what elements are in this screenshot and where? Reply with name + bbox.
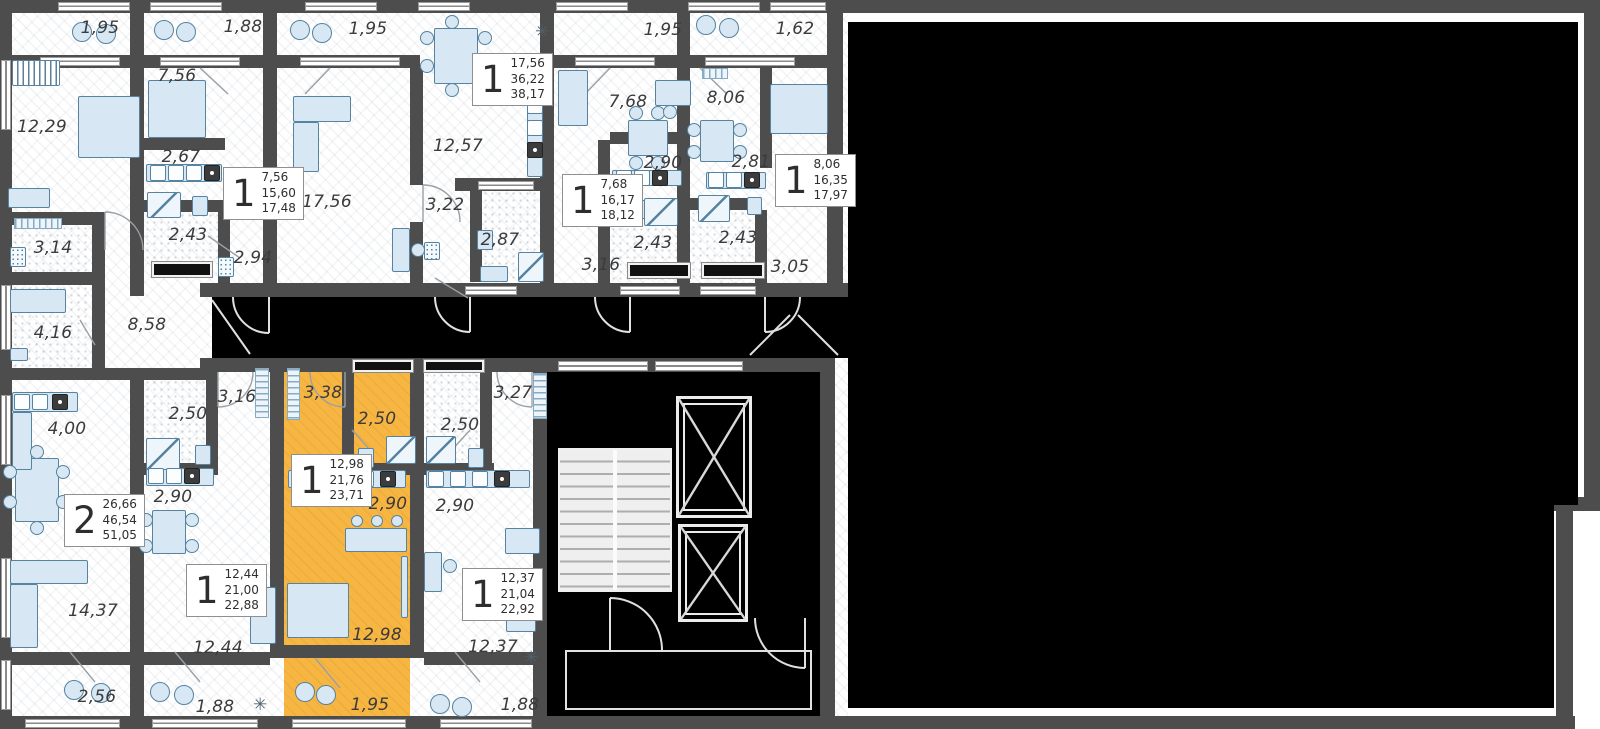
- furniture-icon: [10, 584, 38, 648]
- chair-icon: [443, 559, 457, 573]
- window-icon: [1, 395, 11, 465]
- stove-icon: [184, 468, 200, 484]
- room-area-label: 2,50: [358, 409, 397, 429]
- room-area-label: 2,43: [169, 225, 208, 245]
- room-area-label: 14,37: [68, 601, 118, 621]
- furniture-icon: [195, 445, 211, 465]
- appliance-icon: [708, 172, 724, 188]
- unit-badge[interactable]: 18,0616,3517,97: [775, 154, 856, 207]
- cabinet-icon: [10, 247, 26, 267]
- unit-badge[interactable]: 117,5636,2238,17: [472, 53, 553, 106]
- cabinet-icon: [424, 242, 440, 260]
- window-icon: [25, 719, 120, 728]
- room-area-label: 2,67: [162, 147, 201, 167]
- window-icon: [58, 2, 130, 11]
- unit-rooms-count: 2: [73, 502, 97, 539]
- unit-areas: 17,5636,2238,17: [511, 56, 545, 103]
- wall-segment: [410, 222, 423, 296]
- room-area-label: 1,95: [81, 18, 120, 38]
- window-icon: [465, 286, 517, 295]
- unit-rooms-count: 1: [300, 462, 324, 499]
- balcony-chair-icon: [312, 23, 332, 43]
- window-icon: [655, 361, 743, 371]
- unit-area-value: 16,35: [814, 173, 848, 189]
- unit-area-value: 18,12: [601, 208, 635, 224]
- room-area-label: 2,43: [719, 228, 758, 248]
- room-area-label: 1,88: [196, 697, 235, 717]
- balcony-chair-icon: [316, 685, 336, 705]
- chair-icon: [185, 513, 199, 527]
- balcony-chair-icon: [150, 682, 170, 702]
- room-area-label: 3,38: [304, 383, 343, 403]
- unit-badge-selected[interactable]: 112,9821,7623,71: [291, 454, 372, 507]
- unit-area-value: 17,48: [262, 201, 296, 217]
- wall-segment: [1584, 13, 1600, 501]
- room-area-label: 12,37: [468, 637, 518, 657]
- wall-segment: [410, 68, 423, 185]
- balcony-chair-icon: [154, 20, 174, 40]
- unit-area-value: 7,68: [601, 177, 635, 193]
- shower-icon: [698, 195, 730, 222]
- appliance-icon: [726, 172, 742, 188]
- unit-rooms-count: 1: [571, 182, 595, 219]
- shower-icon: [518, 252, 544, 282]
- window-icon: [575, 57, 655, 66]
- unit-rooms-count: 1: [232, 175, 256, 212]
- chair-icon: [420, 31, 434, 45]
- unit-badge[interactable]: 112,4421,0022,88: [186, 564, 267, 617]
- chair-icon: [30, 445, 44, 459]
- redacted-area: [212, 297, 848, 358]
- furniture-icon: [655, 80, 691, 106]
- furniture-icon: [424, 552, 442, 592]
- chair-icon: [185, 539, 199, 553]
- unit-rooms-count: 1: [784, 162, 808, 199]
- furniture-icon: [287, 583, 349, 638]
- chair-icon: [420, 59, 434, 73]
- staircase-icon: [558, 448, 672, 592]
- stove-icon: [744, 172, 760, 188]
- furniture-icon: [345, 528, 407, 552]
- furniture-icon: [148, 80, 206, 138]
- stool-icon: [391, 515, 403, 527]
- room-area-label: 2,90: [436, 496, 475, 516]
- furniture-icon: [10, 348, 28, 361]
- unit-badge[interactable]: 17,5615,6017,48: [223, 167, 304, 220]
- shower-icon: [386, 436, 416, 464]
- room-area-label: 2,43: [634, 233, 673, 253]
- chair-icon: [445, 15, 459, 29]
- room-area-label: 8,58: [128, 315, 167, 335]
- shower-icon: [644, 198, 678, 226]
- window-icon: [305, 2, 377, 11]
- niche-icon: [628, 263, 690, 278]
- window-icon: [558, 361, 648, 371]
- balcony-chair-icon: [452, 697, 472, 717]
- room-area-label: 2,50: [441, 415, 480, 435]
- furniture-icon: [8, 188, 50, 208]
- furniture-icon: [152, 510, 186, 554]
- unit-area-value: 46,54: [103, 513, 137, 529]
- appliance-icon: [450, 471, 466, 487]
- wall-segment: [1556, 511, 1573, 716]
- window-icon: [620, 286, 680, 295]
- unit-area-value: 12,37: [501, 571, 535, 587]
- chair-icon: [663, 105, 677, 119]
- room-area-label: 3,16: [582, 255, 621, 275]
- unit-area-value: 38,17: [511, 87, 545, 103]
- chair-icon: [411, 243, 425, 257]
- furniture-icon: [770, 84, 828, 134]
- room-area-label: 17,56: [302, 192, 352, 212]
- room-area-label: 12,57: [433, 136, 483, 156]
- room-area-label: 1,62: [776, 19, 815, 39]
- appliance-icon: [186, 165, 202, 181]
- room-area-label: 2,90: [154, 487, 193, 507]
- elevator-shaft-icon: [678, 524, 748, 622]
- wall-segment: [0, 272, 100, 285]
- unit-badge[interactable]: 226,6646,5451,05: [64, 494, 145, 547]
- window-icon: [160, 57, 240, 66]
- unit-area-value: 26,66: [103, 497, 137, 513]
- window-icon: [1, 60, 11, 130]
- window-icon: [292, 719, 406, 728]
- window-icon: [150, 2, 222, 11]
- appliance-icon: [32, 394, 48, 410]
- wall-segment: [410, 358, 424, 658]
- coat-rack-icon: [14, 218, 62, 229]
- furniture-icon: [392, 228, 410, 272]
- furniture-icon: [747, 197, 762, 215]
- unit-area-value: 22,92: [501, 602, 535, 618]
- furniture-icon: [10, 560, 88, 584]
- window-icon: [705, 57, 795, 66]
- floor-plan: ✳✳✳ 1,951,881,951,951,6212,297,562,6717,…: [0, 0, 1600, 729]
- wardrobe-icon: [255, 368, 269, 418]
- balcony-chair-icon: [176, 22, 196, 42]
- chair-icon: [478, 31, 492, 45]
- stool-icon: [351, 515, 363, 527]
- redacted-area: [848, 22, 1578, 505]
- unit-area-value: 23,71: [330, 488, 364, 504]
- room-area-label: 2,81: [732, 152, 771, 172]
- unit-area-value: 51,05: [103, 528, 137, 544]
- unit-area-value: 8,06: [814, 157, 848, 173]
- unit-rooms-count: 1: [471, 576, 495, 613]
- room-area-label: 3,27: [494, 383, 533, 403]
- appliance-icon: [428, 471, 444, 487]
- unit-area-value: 15,60: [262, 186, 296, 202]
- chair-icon: [3, 495, 17, 509]
- window-icon: [418, 2, 470, 11]
- unit-areas: 26,6646,5451,05: [103, 497, 137, 544]
- furniture-icon: [192, 196, 208, 216]
- wall-segment: [342, 368, 354, 463]
- furniture-icon: [293, 96, 351, 122]
- unit-area-value: 36,22: [511, 72, 545, 88]
- unit-area-value: 21,04: [501, 587, 535, 603]
- chair-icon: [445, 83, 459, 97]
- window-icon: [688, 2, 760, 11]
- unit-area-value: 17,97: [814, 188, 848, 204]
- unit-areas: 8,0616,3517,97: [814, 157, 848, 204]
- room-area-label: 12,44: [193, 638, 243, 658]
- room-area-label: 3,16: [218, 387, 257, 407]
- appliance-icon: [14, 394, 30, 410]
- chair-icon: [30, 521, 44, 535]
- balcony-chair-icon: [295, 682, 315, 702]
- niche-icon: [353, 360, 413, 372]
- room-area-label: 1,88: [501, 695, 540, 715]
- unit-areas: 7,5615,6017,48: [262, 170, 296, 217]
- window-icon: [770, 2, 826, 11]
- room-area-label: 2,90: [369, 494, 408, 514]
- stove-icon: [527, 142, 543, 158]
- unit-areas: 7,6816,1718,12: [601, 177, 635, 224]
- room-area-label: 1,95: [351, 695, 390, 715]
- balcony-chair-icon: [719, 18, 739, 38]
- furniture-icon: [293, 122, 319, 172]
- unit-areas: 12,4421,0022,88: [225, 567, 259, 614]
- room-area-label: 3,05: [771, 257, 810, 277]
- stove-icon: [494, 471, 510, 487]
- unit-area-value: 7,56: [262, 170, 296, 186]
- room-area-label: 2,56: [78, 687, 117, 707]
- wall-segment: [92, 212, 105, 380]
- chair-icon: [733, 123, 747, 137]
- chair-icon: [56, 465, 70, 479]
- room-area-label: 7,68: [609, 92, 648, 112]
- room-area-label: 12,29: [17, 117, 67, 137]
- balcony-chair-icon: [174, 685, 194, 705]
- unit-areas: 12,3721,0422,92: [501, 571, 535, 618]
- unit-rooms-count: 1: [481, 61, 505, 98]
- stove-icon: [52, 394, 68, 410]
- shower-icon: [146, 438, 180, 470]
- room-area-label: 2,50: [169, 404, 208, 424]
- unit-area-value: 22,88: [225, 598, 259, 614]
- appliance-icon: [148, 468, 164, 484]
- unit-area-value: 12,98: [330, 457, 364, 473]
- room-area-label: 2,94: [234, 248, 273, 268]
- furniture-icon: [468, 448, 484, 468]
- window-icon: [440, 719, 532, 728]
- room-area-label: 12,98: [352, 625, 402, 645]
- unit-area-value: 17,56: [511, 56, 545, 72]
- cabinet-icon: [218, 257, 234, 277]
- unit-rooms-count: 1: [195, 572, 219, 609]
- wall-segment: [820, 358, 835, 716]
- stove-icon: [380, 471, 396, 487]
- appliance-icon: [166, 468, 182, 484]
- wall-segment: [12, 368, 207, 380]
- appliance-icon: [168, 165, 184, 181]
- room-area-label: 3,14: [34, 238, 73, 258]
- wardrobe-icon: [533, 373, 547, 419]
- unit-badge[interactable]: 112,3721,0422,92: [462, 568, 543, 621]
- furniture-icon: [401, 556, 408, 618]
- window-icon: [152, 719, 258, 728]
- room-area-label: 2,87: [481, 230, 520, 250]
- wall-segment: [284, 645, 410, 658]
- chair-icon: [629, 156, 643, 170]
- room-area-label: 7,56: [158, 66, 197, 86]
- balcony-chair-icon: [696, 15, 716, 35]
- room-area-label: 1,88: [224, 17, 263, 37]
- niche-icon: [702, 263, 764, 278]
- room-area-label: 4,00: [48, 419, 87, 439]
- appliance-icon: [150, 165, 166, 181]
- unit-area-value: 21,76: [330, 473, 364, 489]
- shower-icon: [147, 192, 181, 218]
- appliance-icon: [472, 471, 488, 487]
- piano-icon: [12, 60, 60, 86]
- vestibule-outline: [565, 650, 812, 710]
- coat-rack-icon: [702, 68, 728, 79]
- room-area-label: 4,16: [34, 323, 73, 343]
- furniture-icon: [505, 528, 540, 554]
- furniture-icon: [10, 289, 66, 313]
- furniture-icon: [480, 266, 508, 282]
- room-area-label: 1,95: [349, 19, 388, 39]
- wall-segment: [12, 652, 130, 665]
- unit-area-value: 21,00: [225, 583, 259, 599]
- balcony-chair-icon: [290, 20, 310, 40]
- room-area-label: 3,22: [426, 195, 465, 215]
- room-area-label: 8,06: [707, 88, 746, 108]
- appliance-icon: [527, 120, 543, 136]
- furniture-icon: [78, 96, 140, 158]
- furniture-icon: [558, 70, 588, 126]
- unit-area-value: 16,17: [601, 193, 635, 209]
- room-area-label: 2,90: [644, 153, 683, 173]
- stool-icon: [371, 515, 383, 527]
- redacted-area: [848, 505, 1554, 708]
- chair-icon: [687, 123, 701, 137]
- furniture-icon: [700, 120, 734, 162]
- wardrobe-icon: [287, 368, 300, 420]
- niche-icon: [152, 262, 212, 277]
- balcony-chair-icon: [430, 694, 450, 714]
- room-area-label: 1,95: [644, 20, 683, 40]
- unit-area-value: 12,44: [225, 567, 259, 583]
- unit-badge[interactable]: 17,6816,1718,12: [562, 174, 643, 227]
- window-icon: [556, 2, 628, 11]
- window-icon: [300, 57, 400, 66]
- stove-icon: [204, 165, 220, 181]
- elevator-shaft-icon: [676, 396, 752, 518]
- unit-areas: 12,9821,7623,71: [330, 457, 364, 504]
- furniture-icon: [628, 120, 668, 156]
- window-icon: [478, 181, 534, 190]
- niche-icon: [424, 360, 484, 372]
- chair-icon: [3, 465, 17, 479]
- window-icon: [700, 286, 756, 295]
- window-icon: [1, 660, 11, 710]
- furniture-icon: [12, 412, 32, 470]
- chair-icon: [687, 145, 701, 159]
- shower-icon: [426, 436, 456, 464]
